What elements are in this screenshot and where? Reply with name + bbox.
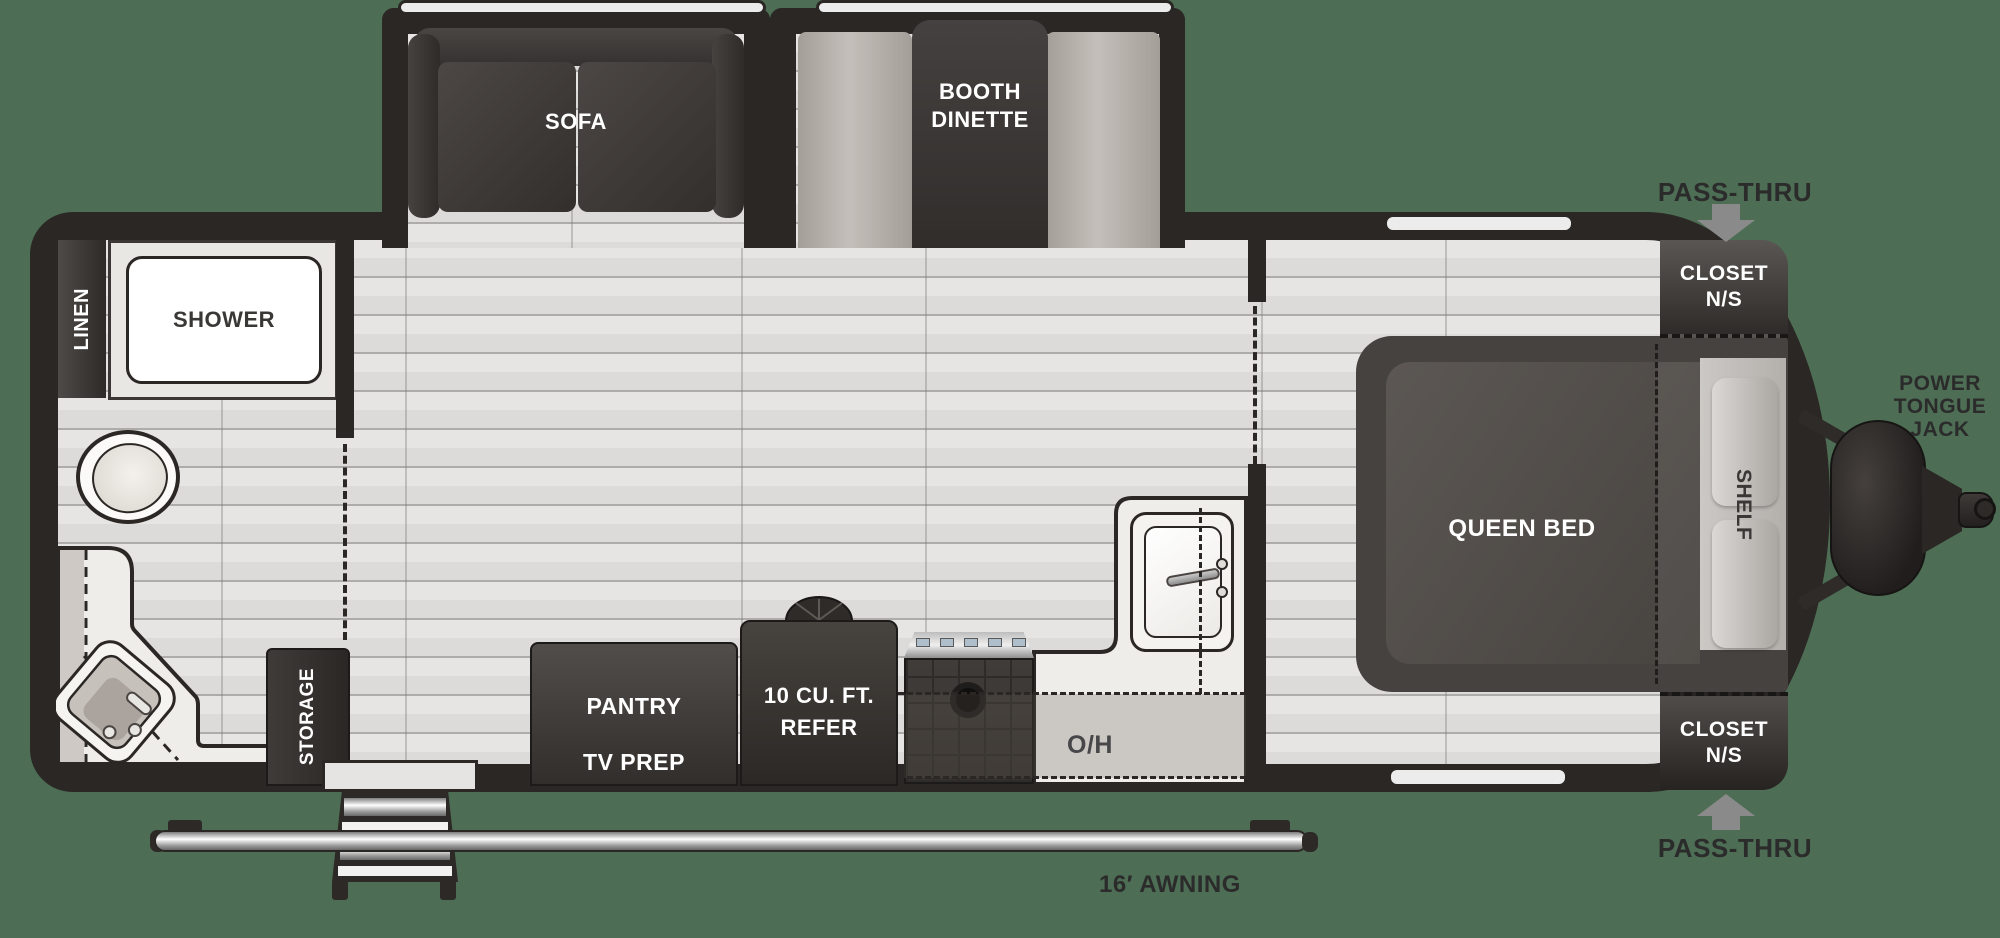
pass-thru-arrow-down-icon — [1697, 220, 1755, 242]
linen-cabinet: LINEN — [58, 240, 106, 398]
shower: SHOWER — [126, 256, 322, 384]
sofa-armrest-right — [712, 34, 744, 218]
floorplan-canvas: SOFA BOOTH DINETTE LINEN SHOWER — [0, 0, 2000, 938]
window — [816, 0, 1174, 15]
step-foot — [332, 880, 348, 900]
pass-thru-arrow-up-icon — [1697, 794, 1755, 816]
awning-label: 16′ AWNING — [1020, 870, 1320, 900]
power-tongue-jack-line2: TONGUE — [1894, 395, 1986, 418]
shelf-label: SHELF — [1730, 469, 1756, 540]
pass-thru-top-text: PASS-THRU — [1658, 177, 1812, 207]
sofa-label: SOFA — [466, 108, 686, 136]
dinette-label: BOOTH DINETTE — [880, 78, 1080, 133]
propane-tank-cover — [1830, 420, 1926, 596]
closet-bottom-label-line1: CLOSET — [1680, 718, 1768, 741]
shelf-label-wrap: SHELF — [1700, 430, 1786, 580]
dinette-table — [912, 20, 1048, 248]
step-tread — [344, 798, 446, 816]
dinette-label-line1: BOOTH — [939, 79, 1021, 104]
kitchen-sink-knob — [1216, 586, 1228, 598]
power-tongue-jack-label: POWER TONGUE JACK — [1876, 372, 2000, 441]
dinette-bench-right — [1046, 32, 1160, 248]
bathroom-wall — [336, 240, 354, 438]
overhead-dashed-line — [898, 692, 1246, 695]
sofa-backrest — [414, 28, 738, 66]
sofa-armrest-left — [408, 34, 440, 218]
awning-end-cap — [1302, 832, 1318, 852]
step-tread — [338, 866, 452, 876]
sofa-cushion — [578, 62, 716, 212]
power-tongue-jack-line3: JACK — [1910, 418, 1969, 441]
dinette-bench-left — [798, 32, 912, 248]
awning-bar — [154, 830, 1308, 852]
bedroom-wall — [1248, 464, 1266, 764]
overhead-label-text: O/H — [1067, 731, 1113, 759]
hitch-coupler-latch — [1974, 498, 1996, 520]
stove-knob — [1012, 638, 1026, 647]
closet-bottom-label-line2: N/S — [1706, 744, 1743, 767]
hitch-a-frame — [1922, 466, 1962, 554]
kitchen-sink-knob — [1216, 558, 1228, 570]
pass-thru-arrow-top-stem — [1712, 204, 1740, 220]
bed-fold-dashed-line — [1655, 344, 1658, 684]
refrigerator-vent-fan — [782, 594, 856, 622]
closet-top: CLOSET N/S — [1660, 240, 1788, 338]
storage-label: STORAGE — [296, 668, 320, 765]
stove-knob — [940, 638, 954, 647]
pantry-cabinet: PANTRY TV PREP — [530, 642, 738, 786]
stove-knob — [964, 638, 978, 647]
overhead-label: O/H — [1030, 730, 1150, 761]
queen-bed-label: QUEEN BED — [1398, 514, 1646, 544]
refer-label-line2: REFER — [780, 715, 857, 740]
queen-bed-label-text: QUEEN BED — [1448, 515, 1595, 542]
step-foot — [440, 880, 456, 900]
dinette-label-line2: DINETTE — [931, 107, 1029, 132]
window — [1384, 214, 1574, 233]
overhead-dashed-line-vertical — [1199, 508, 1202, 694]
refer-label: 10 CU. FT. REFER — [742, 680, 896, 744]
pass-thru-bottom-text: PASS-THRU — [1658, 833, 1812, 863]
stove-knob — [916, 638, 930, 647]
awning-label-text: 16′ AWNING — [1099, 871, 1241, 898]
tv-prep-label: TV PREP — [532, 748, 736, 777]
entry-door — [322, 760, 478, 792]
stove-knob — [988, 638, 1002, 647]
shower-label: SHOWER — [173, 306, 275, 334]
pass-thru-label-bottom: PASS-THRU — [1630, 832, 1840, 865]
bed-head-section — [1658, 362, 1700, 664]
sofa-label-text: SOFA — [545, 109, 607, 134]
window — [1388, 767, 1568, 787]
overhead-dashed-line — [898, 776, 1246, 779]
linen-label: LINEN — [70, 288, 95, 351]
refrigerator: 10 CU. FT. REFER — [740, 620, 898, 786]
pantry-label: PANTRY — [532, 692, 736, 721]
pass-thru-arrow-bottom-stem — [1712, 816, 1740, 830]
closet-top-label-line2: N/S — [1706, 288, 1743, 311]
queen-bed-mattress — [1386, 362, 1700, 664]
bedroom-wall-stub — [1248, 240, 1266, 302]
sofa-cushion — [438, 62, 576, 212]
bedroom-door-dashed — [1253, 306, 1257, 464]
closet-top-label-line1: CLOSET — [1680, 262, 1768, 285]
window — [398, 0, 766, 15]
refer-label-line1: 10 CU. FT. — [764, 683, 874, 708]
closet-bottom: CLOSET N/S — [1660, 692, 1788, 790]
power-tongue-jack-line1: POWER — [1899, 372, 1981, 395]
